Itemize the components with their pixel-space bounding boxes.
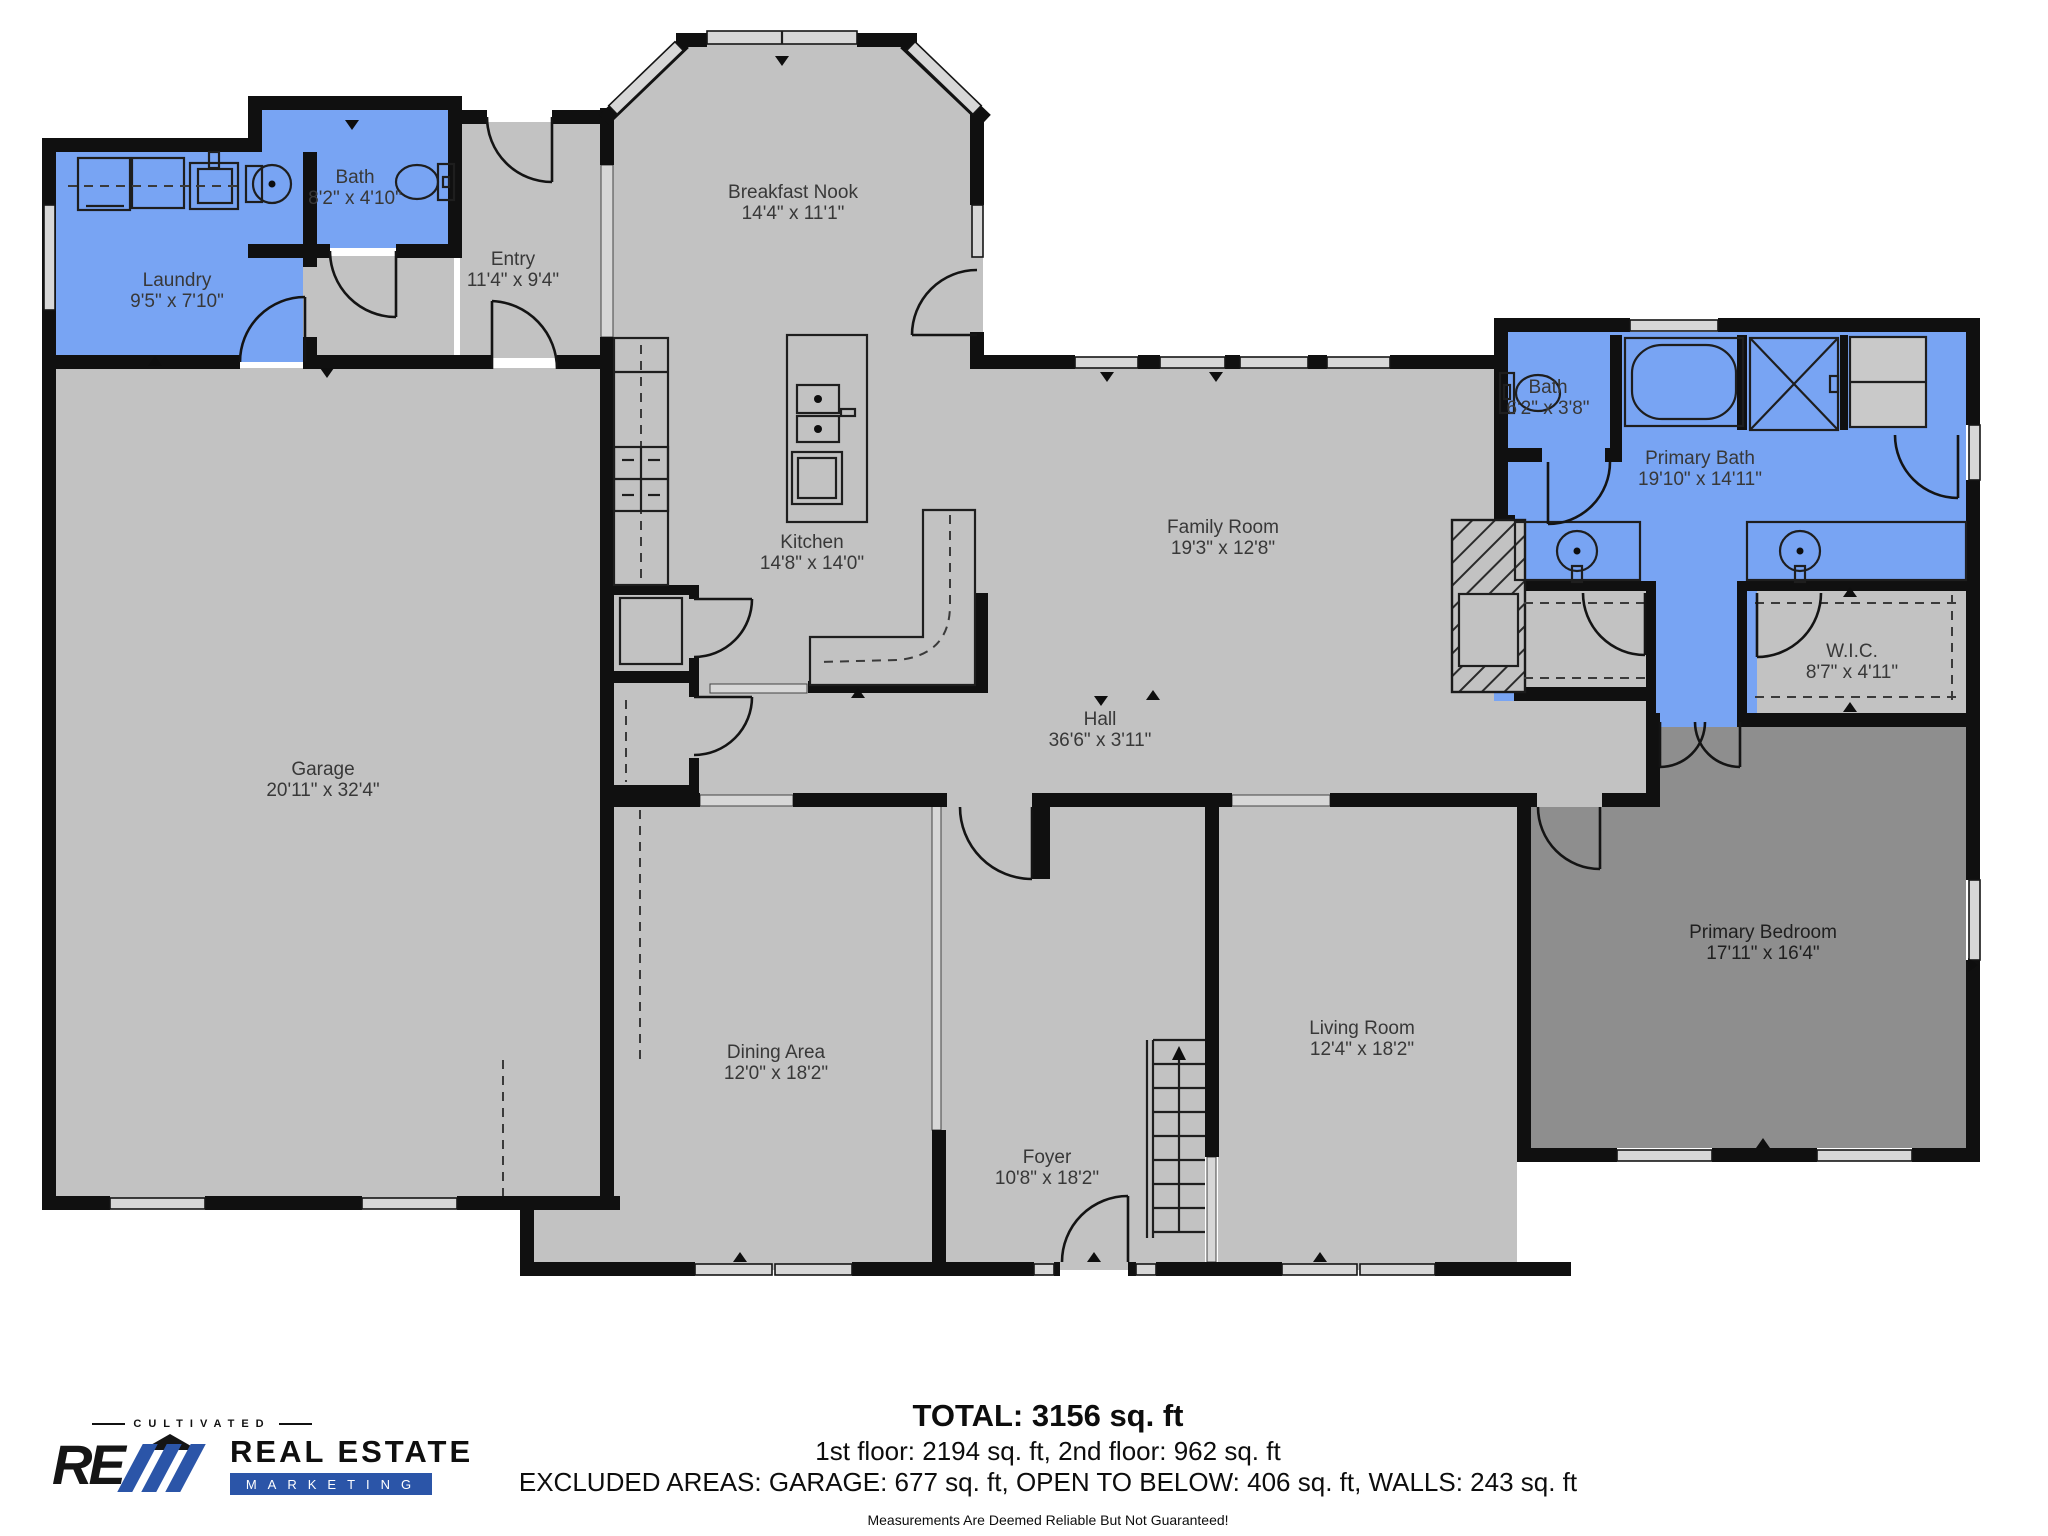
room-label-foyer: Foyer10'8" x 18'2" xyxy=(995,1147,1099,1189)
family-window-1 xyxy=(1075,357,1138,368)
room-label-hall: Hall36'6" x 3'11" xyxy=(1049,709,1152,751)
logo-cultivated-row: CULTIVATED xyxy=(92,1418,312,1430)
logo-cultivated-text: CULTIVATED xyxy=(133,1418,270,1430)
hall-dining-opening xyxy=(700,795,793,806)
family-window-3 xyxy=(1240,357,1308,368)
logo-rule-left xyxy=(92,1423,125,1425)
logo-slashes-icon xyxy=(130,1438,222,1492)
floor-layer xyxy=(56,42,1966,1270)
floorplan-page: Laundry9'5" x 7'10" Bath8'2" x 4'10" Ent… xyxy=(0,0,2048,1536)
room-label-breakfast-nook: Breakfast Nook14'4" x 11'1" xyxy=(728,182,858,224)
room-label-primary-bedroom: Primary Bedroom17'11" x 16'4" xyxy=(1689,922,1837,964)
logo-rule-right xyxy=(279,1423,312,1425)
total-area: TOTAL: 3156 sq. ft xyxy=(348,1396,1748,1436)
family-window-4 xyxy=(1327,357,1390,368)
nook-side-window xyxy=(972,205,983,257)
kitchen-island xyxy=(787,335,867,522)
logo-monogram: RE xyxy=(52,1434,222,1496)
family-window-2 xyxy=(1160,357,1225,368)
room-label-entry: Entry11'4" x 9'4" xyxy=(467,249,559,291)
room-label-kitchen: Kitchen14'8" x 14'0" xyxy=(760,532,864,574)
room-label-dining: Dining Area12'0" x 18'2" xyxy=(724,1042,828,1084)
bedroom-window-1 xyxy=(1617,1150,1712,1161)
dining-foyer-opening xyxy=(932,806,941,1130)
kitchen-hall-opening xyxy=(710,684,807,693)
room-label-laundry: Laundry9'5" x 7'10" xyxy=(130,270,224,312)
excluded-areas: EXCLUDED AREAS: GARAGE: 677 sq. ft, OPEN… xyxy=(348,1467,1748,1498)
bedroom-window-2 xyxy=(1817,1150,1912,1161)
room-label-family-room: Family Room19'3" x 12'8" xyxy=(1167,517,1279,559)
room-label-living: Living Room12'4" x 18'2" xyxy=(1309,1018,1415,1060)
hall-living-opening xyxy=(1232,795,1330,806)
living-window-2 xyxy=(1360,1264,1435,1275)
mud-hall-floor xyxy=(314,256,454,359)
front-door-sidelight-left xyxy=(1034,1264,1054,1275)
garage-window-2 xyxy=(362,1198,457,1209)
disclaimer: Measurements Are Deemed Reliable But Not… xyxy=(348,1512,1748,1528)
linen-cabinet xyxy=(1850,337,1926,427)
bedroom-side-window xyxy=(1969,880,1980,960)
tub-window xyxy=(1630,320,1718,331)
foyer-living-opening xyxy=(1207,1157,1216,1262)
foyer-floor xyxy=(941,800,1205,1270)
laundry-window xyxy=(44,205,55,310)
company-logo: CULTIVATED RE REAL ESTATE MARKETING xyxy=(52,1418,442,1496)
logo-real-estate-text: REAL ESTATE xyxy=(230,1434,473,1470)
garage-window-1 xyxy=(110,1198,205,1209)
bath-side-window xyxy=(1969,425,1980,480)
entry-floor xyxy=(460,122,604,358)
logo-marketing-text: MARKETING xyxy=(230,1473,432,1495)
area-summary: TOTAL: 3156 sq. ft 1st floor: 2194 sq. f… xyxy=(348,1396,1748,1528)
room-label-garage: Garage20'11" x 32'4" xyxy=(266,759,379,801)
living-window-1 xyxy=(1282,1264,1357,1275)
hall-east-floor xyxy=(1494,701,1646,795)
room-label-wic: W.I.C.8'7" x 4'11" xyxy=(1806,641,1898,683)
entry-nook-opening xyxy=(601,165,613,337)
floor-areas: 1st floor: 2194 sq. ft, 2nd floor: 962 s… xyxy=(348,1436,1748,1467)
dining-floor xyxy=(613,800,932,1270)
dining-notch-floor xyxy=(520,1200,620,1270)
room-label-primary-bath: Primary Bath19'10" x 14'11" xyxy=(1638,448,1762,490)
dining-window-1 xyxy=(695,1264,772,1275)
dining-window-2 xyxy=(775,1264,852,1275)
room-label-bath2: Bath6'2" x 3'8" xyxy=(1506,377,1589,419)
logo-re-text: RE xyxy=(52,1432,122,1497)
room-label-bath1: Bath8'2" x 4'10" xyxy=(308,167,402,209)
front-door-sidelight-right xyxy=(1136,1264,1156,1275)
